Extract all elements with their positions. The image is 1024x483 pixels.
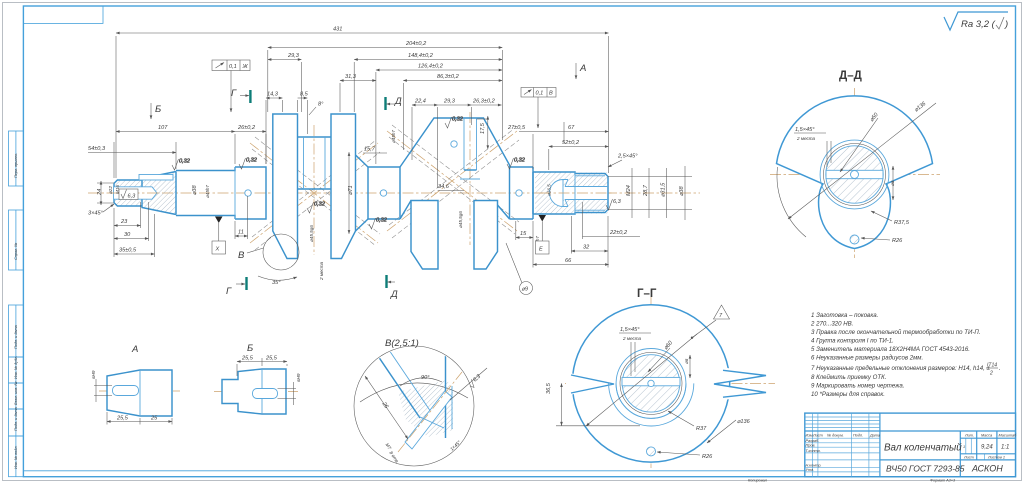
svg-text:7 Неуказанные предельные откл: 7 Неуказанные предельные отклонения разм… <box>811 365 990 372</box>
svg-text:24: 24 <box>97 189 103 196</box>
svg-text:4 Группа контроля I по ТИ-1.: 4 Группа контроля I по ТИ-1. <box>811 338 894 345</box>
svg-text:204±0,2: 204±0,2 <box>405 41 427 47</box>
svg-text:⌀136: ⌀136 <box>737 419 751 425</box>
svg-text:431: 431 <box>333 27 342 33</box>
svg-text:R37: R37 <box>696 426 707 432</box>
svg-text:15,7: 15,7 <box>364 147 376 153</box>
svg-text:35°: 35° <box>272 280 281 286</box>
svg-text:Формат А3×3: Формат А3×3 <box>930 479 956 483</box>
svg-text:6 Неуказанные размеры радиусо: 6 Неуказанные размеры радиусов 2мм. <box>811 355 923 362</box>
svg-text:⌀45h7: ⌀45h7 <box>391 130 396 143</box>
svg-text:В: В <box>238 250 245 261</box>
svg-text:Взам. инв. №: Взам. инв. № <box>14 382 18 405</box>
svg-text:25,5: 25,5 <box>241 356 254 362</box>
svg-text:0,32: 0,32 <box>452 117 464 123</box>
svg-text:⌀16,5: ⌀16,5 <box>547 184 552 196</box>
svg-text:2 места: 2 места <box>796 136 816 141</box>
svg-text:26,3±0,2: 26,3±0,2 <box>472 99 496 105</box>
svg-text:35±0,5: 35±0,5 <box>119 248 137 254</box>
svg-text:9,24: 9,24 <box>981 445 993 451</box>
svg-text:29,3: 29,3 <box>287 53 300 59</box>
svg-text:Инв. № дубл.: Инв. № дубл. <box>14 356 18 379</box>
svg-text:0,32: 0,32 <box>314 202 326 208</box>
svg-text:Е: Е <box>539 247 543 253</box>
svg-text:6,3: 6,3 <box>613 199 622 205</box>
svg-text:Подп. и дата: Подп. и дата <box>14 325 18 349</box>
svg-text:⌀45,5g6: ⌀45,5g6 <box>458 211 463 228</box>
svg-text:Г: Г <box>231 88 237 99</box>
svg-text:126,4±0,2: 126,4±0,2 <box>418 64 444 70</box>
svg-text:А: А <box>579 63 586 74</box>
svg-text:0,32: 0,32 <box>514 158 526 164</box>
svg-text:Разраб.: Разраб. <box>806 439 820 443</box>
svg-text:2,5×45°: 2,5×45° <box>617 154 638 160</box>
svg-text:Утв.: Утв. <box>806 468 815 472</box>
svg-text:⌀6: ⌀6 <box>890 180 895 186</box>
svg-text:Б: Б <box>247 343 253 354</box>
svg-text:0,1: 0,1 <box>536 91 544 97</box>
svg-text:54±0,3: 54±0,3 <box>88 146 106 152</box>
svg-text:2 места: 2 места <box>622 336 642 341</box>
svg-text:Г–Г: Г–Г <box>637 288 657 300</box>
svg-text:86,3±0,2: 86,3±0,2 <box>437 74 460 80</box>
svg-text:11: 11 <box>238 230 244 236</box>
svg-text:3 Правка после окончательной: 3 Правка после окончательной термообрабо… <box>811 329 980 336</box>
svg-text:Ж: Ж <box>242 64 249 70</box>
svg-text:Масса: Масса <box>981 434 992 438</box>
svg-text:М24: М24 <box>626 185 632 196</box>
svg-text:ВЧ50 ГОСТ 7293-85: ВЧ50 ГОСТ 7293-85 <box>886 464 965 474</box>
svg-text:27±0,5: 27±0,5 <box>507 125 526 131</box>
svg-text:32: 32 <box>583 245 590 251</box>
svg-text:⌀22: ⌀22 <box>108 186 113 194</box>
svg-text:Дата: Дата <box>869 434 880 438</box>
svg-text:34,6: 34,6 <box>438 184 450 190</box>
svg-text:1 Заготовка – поковка.: 1 Заготовка – поковка. <box>811 312 878 319</box>
svg-text:Лист: Лист <box>812 434 823 438</box>
svg-text:107: 107 <box>158 125 168 131</box>
svg-text:26±0,2: 26±0,2 <box>237 125 256 131</box>
svg-text:6Н9: 6Н9 <box>91 370 96 379</box>
svg-text:2: 2 <box>989 371 993 377</box>
svg-text:Пров.: Пров. <box>806 444 816 448</box>
svg-text:Масштаб: Масштаб <box>999 434 1018 438</box>
svg-text:1: 1 <box>963 445 965 449</box>
svg-text:0,32: 0,32 <box>246 158 258 164</box>
svg-text:17,5: 17,5 <box>480 122 486 134</box>
svg-text:Д: Д <box>390 289 398 300</box>
svg-text:66: 66 <box>565 258 572 264</box>
svg-text:R26: R26 <box>892 238 903 244</box>
svg-text:Лист: Лист <box>963 456 974 460</box>
svg-text:0,1: 0,1 <box>229 64 237 70</box>
svg-text:R26: R26 <box>702 454 713 460</box>
svg-text:Подп.: Подп. <box>853 434 863 438</box>
svg-text:АСКОН: АСКОН <box>971 464 1003 474</box>
svg-text:36,5: 36,5 <box>546 382 552 394</box>
svg-text:22±0,2: 22±0,2 <box>609 230 628 236</box>
svg-text:52±0,2: 52±0,2 <box>562 140 580 146</box>
svg-text:№ докум.: № докум. <box>827 434 844 438</box>
svg-text:Б: Б <box>155 104 161 115</box>
svg-text:6Н9: 6Н9 <box>296 373 301 382</box>
svg-text:IT14: IT14 <box>987 363 997 369</box>
svg-text:Г: Г <box>226 286 232 297</box>
svg-text:Д–Д: Д–Д <box>839 70 862 82</box>
svg-text:2 270...320 НВ.: 2 270...320 НВ. <box>810 321 853 328</box>
svg-text:Копировал: Копировал <box>748 479 768 483</box>
svg-text:0,32: 0,32 <box>179 159 191 165</box>
svg-text:9 Маркировать номер чертежа.: 9 Маркировать номер чертежа. <box>811 383 904 390</box>
svg-text:Д: Д <box>394 96 402 107</box>
svg-text:Листов 1: Листов 1 <box>987 456 1005 460</box>
svg-text:⌀45h7: ⌀45h7 <box>205 185 210 198</box>
svg-text:Вал коленчатый: Вал коленчатый <box>884 443 962 454</box>
svg-text:1,5×45°: 1,5×45° <box>795 127 815 133</box>
svg-text:⌀9: ⌀9 <box>522 287 528 293</box>
svg-text:30: 30 <box>124 232 131 238</box>
svg-text:Инв. № подл.: Инв. № подл. <box>14 445 18 469</box>
svg-text:Х: Х <box>215 247 220 253</box>
svg-text:Перв. примен.: Перв. примен. <box>14 153 18 178</box>
svg-text:2 места: 2 места <box>319 261 324 281</box>
svg-text:25: 25 <box>150 416 158 422</box>
svg-text:⌀45,5g6: ⌀45,5g6 <box>309 225 314 242</box>
svg-text:5 Заменитель материала 18Х2Н4: 5 Заменитель материала 18Х2Н4МА ГОСТ 454… <box>811 346 970 353</box>
svg-text:8 Клеймить приемку ОТК.: 8 Клеймить приемку ОТК. <box>811 374 886 381</box>
svg-text:Н.контр.: Н.контр. <box>806 464 822 468</box>
svg-text:⌀31,5: ⌀31,5 <box>661 182 667 197</box>
svg-text:0,32: 0,32 <box>376 218 388 224</box>
svg-text:Подп. и дата: Подп. и дата <box>14 407 18 431</box>
svg-text:67: 67 <box>568 125 575 131</box>
svg-text:23: 23 <box>120 219 128 225</box>
svg-text:148,4±0,2: 148,4±0,2 <box>408 53 434 59</box>
svg-text:29,3: 29,3 <box>443 99 456 105</box>
svg-text:.: . <box>999 365 1001 372</box>
svg-text:А: А <box>131 344 138 355</box>
svg-text:3×45°: 3×45° <box>88 211 104 217</box>
svg-text:⌀38: ⌀38 <box>192 185 198 195</box>
svg-text:): ) <box>1004 19 1008 30</box>
svg-text:25,5: 25,5 <box>265 356 278 362</box>
svg-text:⌀6: ⌀6 <box>684 358 689 364</box>
svg-text:R37,5: R37,5 <box>894 220 910 226</box>
svg-text:Ra 3,2 (: Ra 3,2 ( <box>961 19 996 30</box>
svg-text:28,7: 28,7 <box>643 184 649 197</box>
svg-text:15: 15 <box>520 231 527 237</box>
svg-text:10 *Размеры для справок.: 10 *Размеры для справок. <box>811 391 885 398</box>
svg-text:22,4: 22,4 <box>414 99 426 105</box>
svg-text:Справ. №: Справ. № <box>14 243 18 260</box>
svg-text:⌀38: ⌀38 <box>679 186 685 196</box>
svg-text:31,3: 31,3 <box>345 74 357 80</box>
svg-text:В: В <box>549 91 553 97</box>
svg-text:8°: 8° <box>318 102 324 108</box>
svg-text:1,5×45°: 1,5×45° <box>620 327 640 333</box>
svg-text:1:1: 1:1 <box>1001 445 1009 451</box>
svg-text:Т.контр.: Т.контр. <box>806 449 821 453</box>
svg-text:25,5: 25,5 <box>116 416 129 422</box>
svg-text:Лит.: Лит. <box>964 434 974 438</box>
svg-text:14,3: 14,3 <box>267 92 279 98</box>
svg-text:6,3: 6,3 <box>128 194 137 200</box>
